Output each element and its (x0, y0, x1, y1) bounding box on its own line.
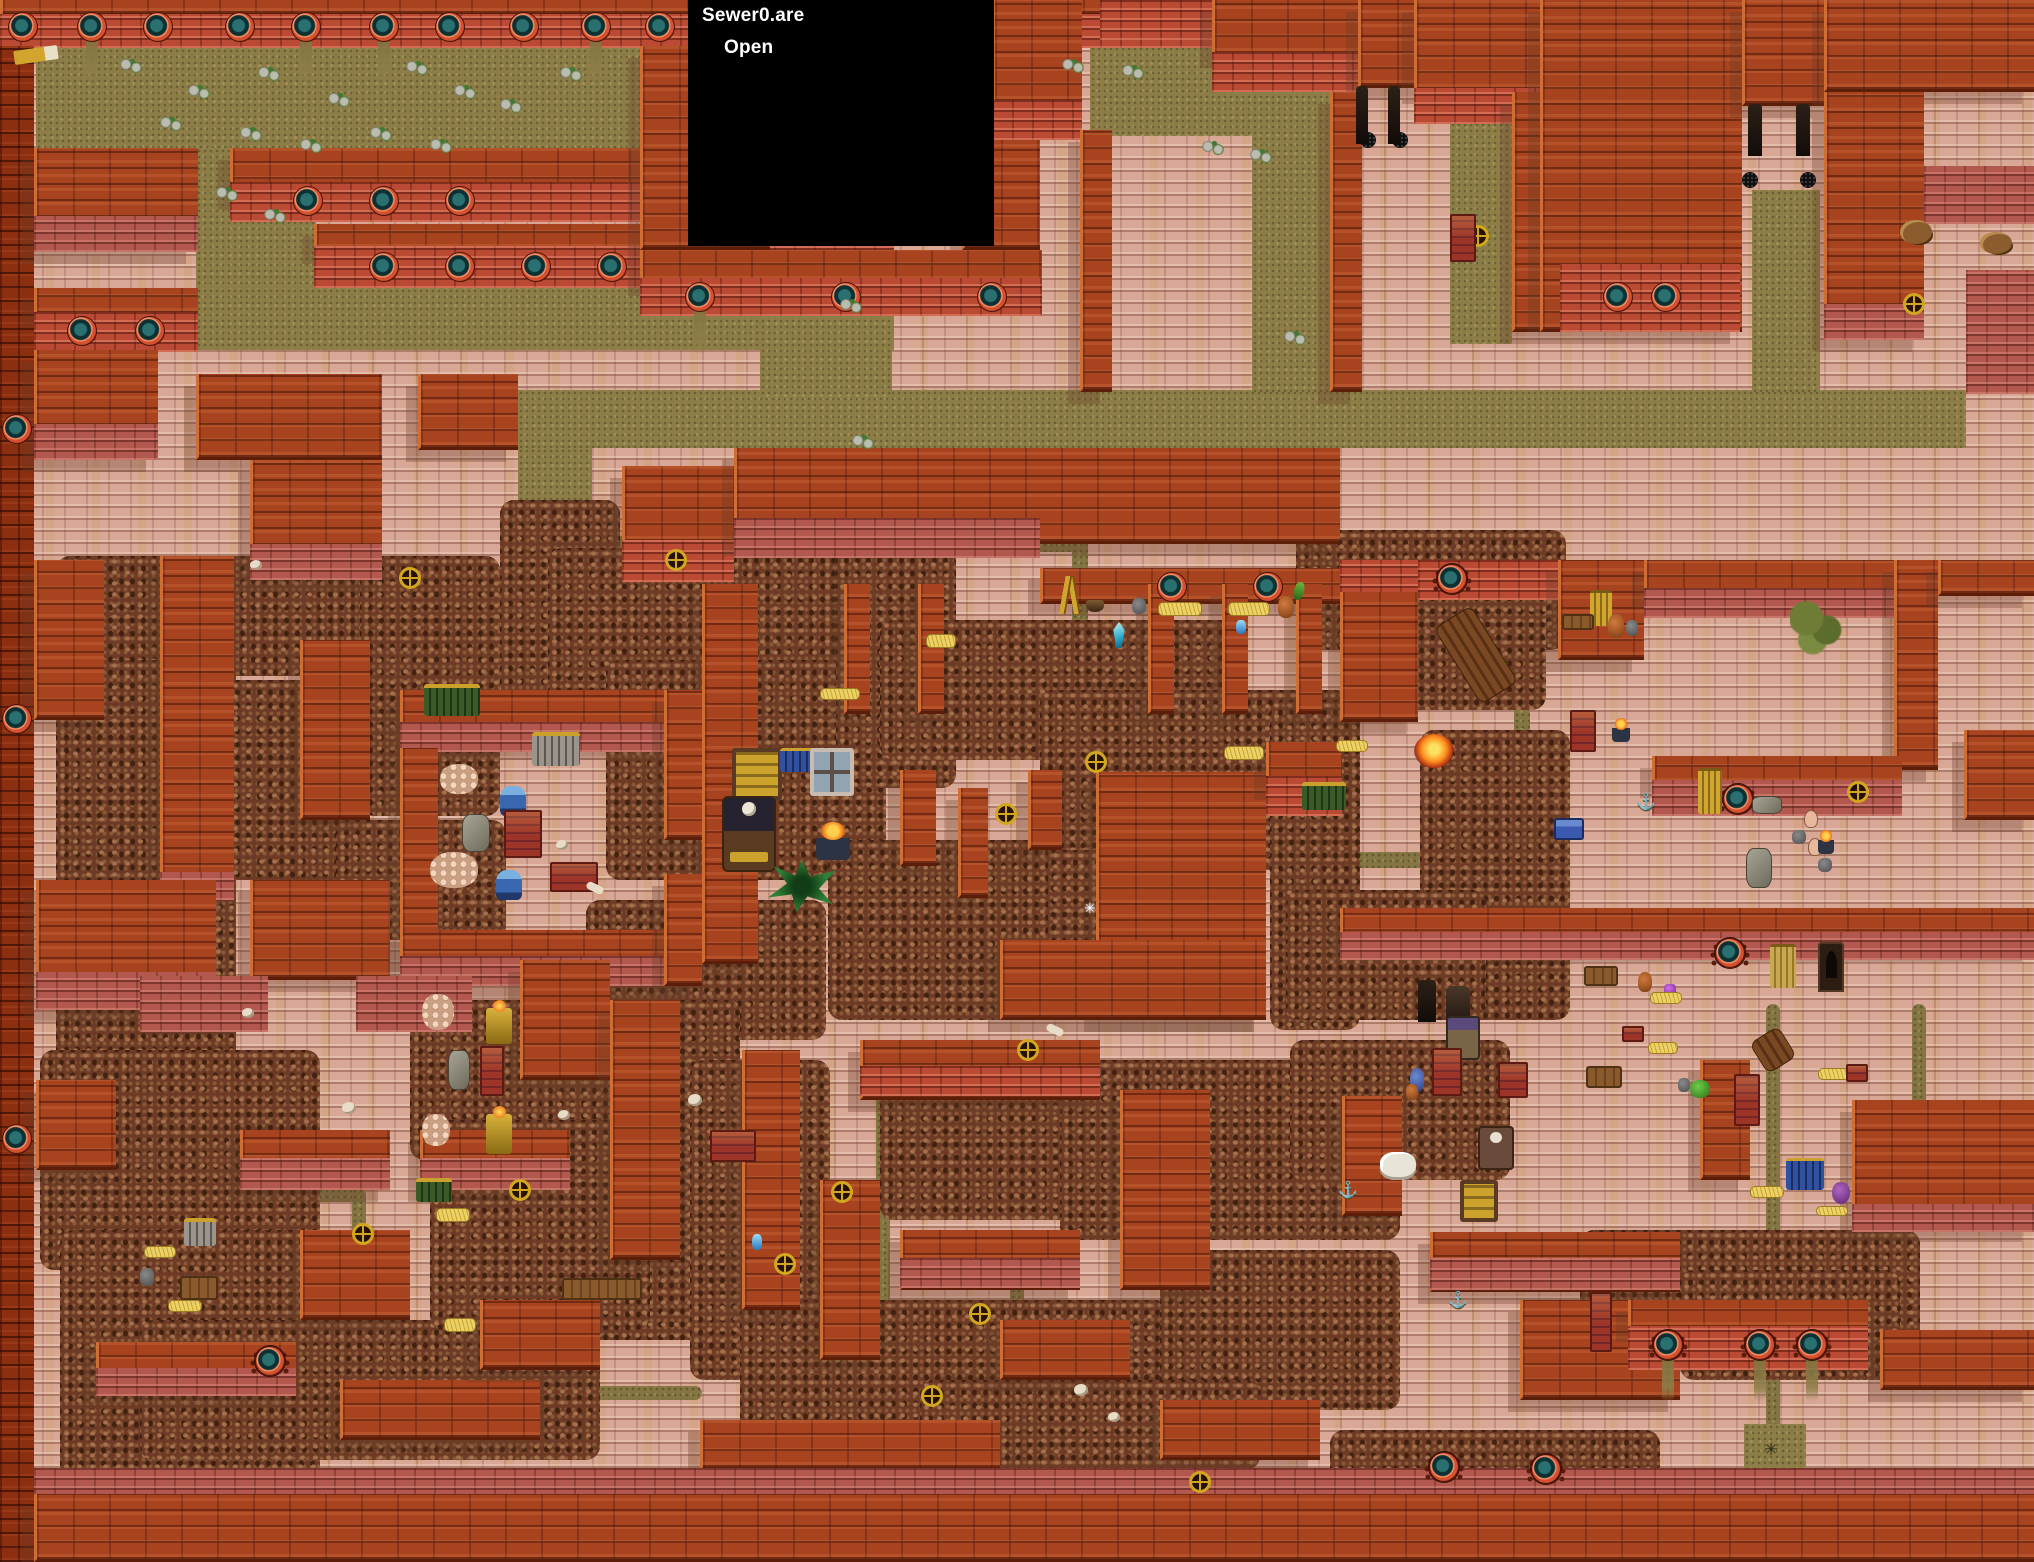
wall-block (820, 1180, 880, 1360)
red-rug (710, 1130, 756, 1162)
valve-wheel-icon (774, 1253, 796, 1275)
skull (558, 1110, 570, 1120)
wall-block (34, 1494, 2034, 1562)
moss-patch (1790, 598, 1844, 656)
wall-block (610, 1000, 680, 1260)
wall-block (1120, 1090, 1210, 1290)
manhole-porthole-icon (581, 12, 611, 42)
manhole-porthole-icon (1715, 938, 1745, 968)
stone-cluster (1120, 64, 1146, 80)
file-panel: Sewer0.are Open (688, 0, 994, 246)
skull (1074, 1384, 1088, 1396)
gray-tapestry (532, 732, 580, 766)
manhole-porthole-icon (67, 316, 97, 346)
red-rug (1622, 1026, 1644, 1042)
wall-block (1000, 940, 1264, 1020)
campfire (1414, 734, 1454, 768)
bowl (1086, 600, 1104, 612)
manhole-porthole-icon (143, 12, 173, 42)
wall-block (340, 1380, 540, 1440)
valve-wheel-icon (1017, 1039, 1039, 1061)
open-menu-item[interactable]: Open (724, 37, 773, 59)
window-frame (810, 748, 854, 796)
wall-cap-rose (250, 544, 382, 580)
jug (1278, 596, 1294, 618)
wall-block (900, 770, 936, 866)
red-rug (1450, 214, 1476, 262)
shrine (1818, 942, 1844, 992)
wooden-table (1586, 1066, 1622, 1088)
wall-cap (860, 1066, 1100, 1096)
wall-cap-rose (1340, 932, 2034, 960)
wall-cap-rose (734, 518, 1040, 558)
boulder (1752, 796, 1782, 814)
hay-pile (1816, 1206, 1848, 1216)
wall-block (664, 690, 702, 840)
red-rug (1846, 1064, 1868, 1082)
stone-cluster (1200, 140, 1226, 156)
fire-brazier (816, 822, 850, 860)
critter (1900, 220, 1932, 244)
pot (1818, 858, 1832, 872)
manhole-porthole-icon (445, 186, 475, 216)
gate-post (1356, 86, 1368, 144)
valve-wheel-icon (665, 549, 687, 571)
wall-block (700, 1420, 1000, 1470)
red-rug (504, 810, 542, 858)
wall-block (1358, 0, 1414, 88)
stone-cluster (262, 208, 288, 224)
wall-block (1414, 0, 1540, 92)
gate-post (1796, 104, 1810, 156)
skull (250, 560, 262, 570)
wall-block (418, 374, 518, 450)
wall-cap-rose (1644, 588, 1894, 618)
valve-wheel-icon (1085, 751, 1107, 773)
wall-cap (1100, 0, 1212, 40)
red-rug (1590, 1292, 1612, 1352)
skull-shrine (1478, 1126, 1514, 1170)
hay-pile (444, 1318, 476, 1332)
wall-block (1340, 592, 1418, 722)
fire-brazier (1612, 718, 1630, 742)
map-canvas[interactable]: Sewer0.are Open (0, 0, 2034, 1562)
skull (242, 1008, 254, 1018)
manhole-porthole-icon (1531, 1454, 1561, 1484)
path-area (518, 390, 1966, 448)
stone-cluster (298, 138, 324, 154)
manhole-porthole-icon (521, 252, 551, 282)
gray-tapestry (184, 1218, 216, 1246)
valve-wheel-icon (969, 1303, 991, 1325)
wall-block (196, 374, 382, 460)
gate-post (1418, 980, 1436, 1022)
stone-cluster (368, 126, 394, 142)
anchor-icon (1636, 792, 1656, 812)
jug (1406, 1084, 1418, 1100)
manhole-porthole-icon (645, 12, 675, 42)
wall-block (1000, 1320, 1130, 1380)
valve-wheel-icon (509, 1179, 531, 1201)
slime-drip-icon (590, 36, 602, 84)
wooden-table (1584, 966, 1618, 986)
manhole-porthole-icon (1797, 1330, 1827, 1360)
floor-grate-icon (1742, 172, 1758, 188)
wall-cap-rose (1852, 1204, 2034, 1232)
stone-cluster (850, 434, 876, 450)
wall-cap-rose (1966, 270, 2034, 394)
hay-pile (1228, 602, 1270, 616)
manhole-porthole-icon (1437, 564, 1467, 594)
hay-pile (820, 688, 860, 700)
manhole-porthole-icon (293, 186, 323, 216)
wooden-table (180, 1276, 218, 1300)
wall-block (1824, 0, 2034, 92)
hay-pile (1648, 1042, 1678, 1054)
wall-block (160, 556, 234, 900)
manhole-porthole-icon (225, 12, 255, 42)
wall-block (622, 466, 734, 544)
wall-cap (34, 312, 198, 352)
manhole-porthole-icon (2, 704, 32, 734)
skull (556, 840, 568, 850)
wall-block (1742, 0, 1824, 106)
manhole-porthole-icon (255, 1346, 285, 1376)
hay-pile (1224, 746, 1264, 760)
wall-cap-rose (1924, 166, 2034, 224)
manhole-porthole-icon (1723, 784, 1753, 814)
red-rug (1432, 1048, 1462, 1096)
wall-block (1160, 1400, 1320, 1460)
stone-cluster (498, 98, 524, 114)
sigil-icon (1764, 1440, 1788, 1464)
manhole-porthole-icon (977, 282, 1007, 312)
wall-block (1080, 130, 1112, 392)
wall-block (36, 1080, 116, 1170)
stone-cluster (838, 298, 864, 314)
wall-block (520, 960, 610, 1080)
wall-block (1028, 770, 1062, 850)
boulder (1746, 848, 1772, 888)
red-rug (1570, 710, 1596, 752)
wooden-log (1749, 1026, 1797, 1075)
slime-drip-icon (1754, 1354, 1766, 1402)
gold-shelf (1460, 1180, 1498, 1222)
slime-drip-icon (378, 36, 390, 84)
manhole-porthole-icon (135, 316, 165, 346)
boulder (448, 1050, 470, 1090)
skeleton-throne (722, 796, 776, 872)
wall-block (664, 874, 702, 986)
stone-cluster (256, 66, 282, 82)
manhole-porthole-icon (1653, 1330, 1683, 1360)
manhole-porthole-icon (77, 12, 107, 42)
boulder (462, 814, 490, 852)
manhole-porthole-icon (291, 12, 321, 42)
manhole-porthole-icon (1157, 572, 1187, 602)
hay-pile (144, 1246, 176, 1258)
manhole-porthole-icon (369, 252, 399, 282)
manhole-porthole-icon (1253, 572, 1283, 602)
wall-block (34, 560, 104, 720)
wall-cap-rose (1430, 1258, 1680, 1290)
manhole-porthole-icon (1651, 282, 1681, 312)
wall-block (1512, 92, 1540, 332)
anchor-icon (1448, 1290, 1466, 1308)
wall-block (300, 1230, 410, 1320)
wall-block (1212, 0, 1358, 56)
manhole-porthole-icon (2, 1124, 32, 1154)
skull (688, 1094, 702, 1106)
stone-cluster (1248, 148, 1274, 164)
valve-wheel-icon (1847, 781, 1869, 803)
candle-stand (486, 1008, 512, 1044)
bone (1045, 1023, 1065, 1038)
hay-pile (168, 1300, 202, 1312)
hay-pile (926, 634, 956, 648)
valve-wheel-icon (1189, 1471, 1211, 1493)
wall-cap (1212, 52, 1358, 92)
valve-wheel-icon (1903, 293, 1925, 315)
potion-vial (752, 1234, 762, 1250)
pot (1626, 620, 1638, 636)
blue-tapestry (1786, 1158, 1824, 1190)
straw-tapestry (1770, 944, 1796, 988)
hay-pile (1336, 740, 1368, 752)
wall-cap-rose (140, 976, 268, 1032)
floor-grate-icon (1800, 172, 1816, 188)
slime-drip-icon (694, 306, 706, 354)
hay-pile (1650, 992, 1682, 1004)
green-tapestry (424, 684, 480, 716)
stone-cluster (452, 84, 478, 100)
jug (1608, 614, 1624, 638)
wall-cap-rose (34, 424, 158, 460)
manhole-porthole-icon (369, 12, 399, 42)
slime-drip-icon (300, 36, 312, 84)
wall-block (1296, 584, 1322, 714)
wall-block (992, 0, 1082, 104)
wooden-table (1562, 614, 1594, 630)
fountain (496, 870, 522, 900)
green-tapestry (416, 1178, 452, 1202)
wall-block (400, 748, 438, 960)
manhole-porthole-icon (2, 414, 32, 444)
wall-block (1964, 730, 2034, 820)
wall-cap (992, 100, 1082, 140)
bone (585, 881, 605, 896)
wall-cap-rose (356, 976, 472, 1032)
gold-shelf (732, 748, 782, 800)
stone-cluster (558, 66, 584, 82)
valve-wheel-icon (921, 1385, 943, 1407)
valve-wheel-icon (352, 1223, 374, 1245)
sparkle-icon (1084, 900, 1100, 916)
skull-pile (440, 764, 478, 794)
gate-post (1388, 86, 1400, 144)
slime-drip-icon (1806, 1354, 1818, 1402)
hay-pile (1750, 1186, 1784, 1198)
stone-cluster (214, 186, 240, 202)
green-tapestry (1302, 782, 1346, 810)
area-filename: Sewer0.are (702, 5, 804, 27)
gate-post (1748, 104, 1762, 156)
hay-pile (1158, 602, 1202, 616)
skull (342, 1102, 356, 1114)
wall-block (958, 788, 988, 898)
red-rug (480, 1046, 504, 1096)
wall-cap (1340, 560, 1418, 596)
skull-pile (422, 1114, 450, 1146)
red-rug (1734, 1074, 1760, 1126)
path-area (1752, 190, 1820, 392)
wall-cap-rose (900, 1258, 1080, 1288)
wall-block (300, 640, 370, 820)
wall-block (918, 584, 944, 714)
hay-pile (436, 1208, 470, 1222)
wall-block (250, 880, 390, 980)
wall-cap-rose (34, 216, 198, 252)
slime-drip-icon (86, 36, 98, 84)
manhole-porthole-icon (685, 282, 715, 312)
wall-cap-rose (240, 1158, 390, 1190)
potion-vial (1236, 620, 1246, 634)
purple-bag (1832, 1182, 1850, 1204)
stone-cluster (158, 116, 184, 132)
pot (1678, 1078, 1690, 1092)
gold-staffs (1046, 576, 1086, 614)
fire-brazier (1818, 830, 1834, 854)
skeleton-remains (1380, 1152, 1416, 1180)
manhole-porthole-icon (8, 12, 38, 42)
stone-cluster (326, 92, 352, 108)
manhole-porthole-icon (1745, 1330, 1775, 1360)
wall-cap (1560, 264, 1740, 332)
anchor-icon (1338, 1180, 1356, 1198)
edge-wall (0, 46, 34, 1562)
wall-block (1880, 1330, 2034, 1390)
green-jar (1690, 1080, 1710, 1098)
manhole-porthole-icon (1429, 1452, 1459, 1482)
pot (1792, 830, 1806, 844)
stone-cluster (428, 138, 454, 154)
wall-block (1894, 560, 1938, 770)
manhole-porthole-icon (509, 12, 539, 42)
red-rug (1498, 1062, 1528, 1098)
blue-chest (1554, 818, 1584, 840)
stone-cluster (1282, 330, 1308, 346)
pot (1132, 598, 1146, 614)
pot (140, 1268, 154, 1286)
skull-pile (430, 852, 478, 888)
manhole-porthole-icon (597, 252, 627, 282)
stone-cluster (404, 60, 430, 76)
stone-cluster (186, 84, 212, 100)
wooden-table (562, 1278, 642, 1300)
stone-cluster (238, 126, 264, 142)
wall-block (480, 1300, 600, 1370)
critter (1980, 232, 2012, 254)
manhole-porthole-icon (435, 12, 465, 42)
gold-tapestry (1698, 768, 1722, 814)
manhole-porthole-icon (445, 252, 475, 282)
manhole-porthole-icon (369, 186, 399, 216)
skull-pile (422, 994, 454, 1030)
stone-cluster (118, 58, 144, 74)
skull (1108, 1412, 1120, 1422)
candle-stand (486, 1114, 512, 1154)
valve-wheel-icon (399, 567, 421, 589)
valve-wheel-icon (995, 803, 1017, 825)
mask (1804, 810, 1818, 828)
jug (1638, 972, 1652, 992)
wall-block (1938, 560, 2034, 596)
stone-cluster (1060, 58, 1086, 74)
valve-wheel-icon (831, 1181, 853, 1203)
manhole-porthole-icon (1603, 282, 1633, 312)
path-area (1252, 100, 1330, 392)
slime-drip-icon (1662, 1354, 1674, 1402)
